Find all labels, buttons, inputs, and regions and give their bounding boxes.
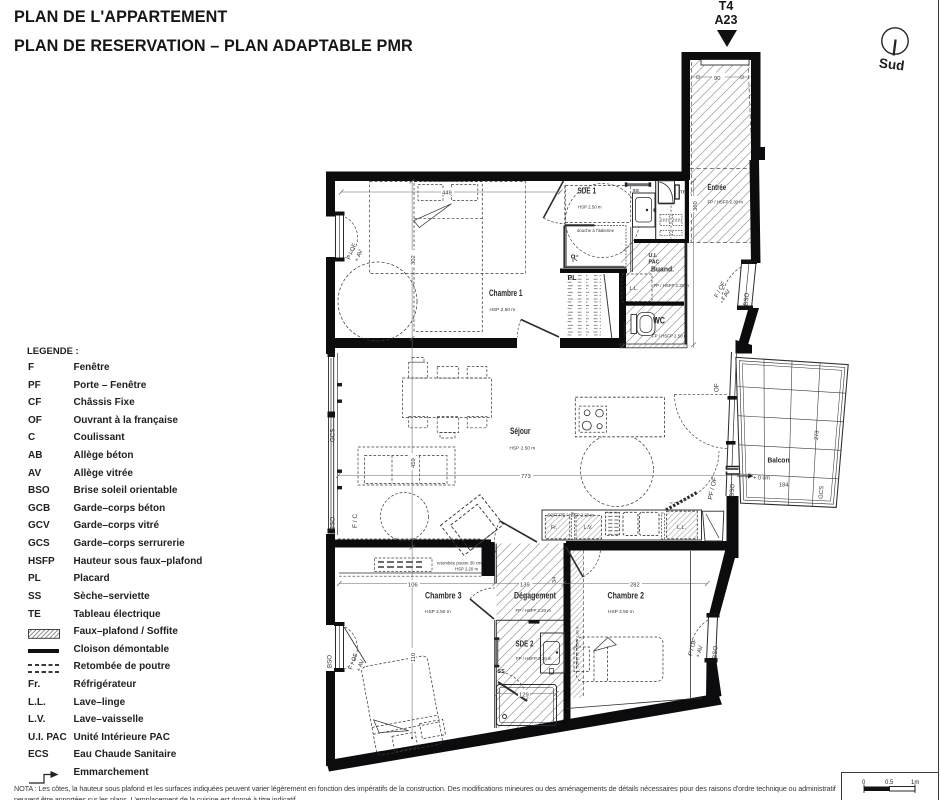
svg-text:L.V.: L.V. [584,525,593,531]
svg-text:Séjour: Séjour [510,426,531,436]
svg-text:L.L.: L.L. [630,286,639,292]
svg-text:FP / HSFP 2.30 m: FP / HSFP 2.30 m [708,200,744,205]
svg-text:34: 34 [552,577,558,583]
svg-text:PAC: PAC [649,260,660,266]
svg-text:SDE 1: SDE 1 [578,187,597,196]
svg-text:Fr.: Fr. [551,525,557,531]
svg-text:BSO: BSO [729,483,737,497]
svg-text:184: 184 [779,483,788,489]
svg-text:WC: WC [653,316,666,326]
svg-text:PL: PL [568,275,578,282]
svg-text:L.L.: L.L. [677,525,686,531]
svg-text:459: 459 [411,458,417,468]
svg-text:129: 129 [519,693,529,699]
svg-text:282: 282 [630,583,640,589]
svg-text:BSO: BSO [327,655,334,668]
svg-text:retombée: retombée [623,322,627,337]
svg-text:HSP 2.50 m: HSP 2.50 m [578,205,602,210]
svg-text:GCS: GCS [330,429,337,442]
svg-text:PF / OF: PF / OF [707,477,719,501]
svg-text:HSP 2.50 m: HSP 2.50 m [425,609,451,615]
svg-text:douche à l'italienne: douche à l'italienne [577,228,615,233]
svg-text:GCS: GCS [819,486,826,499]
svg-text:Entrée: Entrée [708,183,727,192]
svg-text:FP / HSFP 2.50 m: FP / HSFP 2.50 m [652,334,688,339]
svg-text:BSO: BSO [743,292,751,306]
svg-text:HSP 2.20 m: HSP 2.20 m [455,567,479,572]
svg-text:BSO: BSO [330,517,337,530]
svg-text:retombée poutre 30 cm: retombée poutre 30 cm [437,561,482,566]
svg-text:+ AV: + AV [354,249,364,263]
svg-text:Chambre 1: Chambre 1 [489,288,523,298]
svg-text:SDE 2: SDE 2 [516,640,534,649]
svg-text:TE: TE [680,190,687,196]
svg-text:U.I.: U.I. [649,253,658,259]
svg-text:+ 0 cm: + 0 cm [753,476,770,482]
svg-text:HSP 2.50 m: HSP 2.50 m [490,307,516,313]
svg-text:FP / HSFP 2.20 m: FP / HSFP 2.20 m [516,656,552,661]
svg-text:F / C: F / C [352,514,359,528]
svg-text:HSP 2.50 m: HSP 2.50 m [608,609,634,615]
svg-text:HSP 2.50 m: HSP 2.50 m [510,446,536,452]
svg-text:360: 360 [693,201,699,211]
svg-text:449: 449 [442,191,452,197]
svg-text:FP / HSFP 2.20 m: FP / HSFP 2.20 m [654,283,690,288]
svg-text:Chambre 3: Chambre 3 [425,591,462,601]
svg-text:302: 302 [411,255,417,265]
svg-text:Balcon: Balcon [768,456,790,465]
svg-text:Dégagement: Dégagement [514,591,556,601]
svg-text:139: 139 [520,583,530,589]
svg-text:SS: SS [498,669,506,675]
svg-text:773: 773 [521,474,531,480]
svg-text:106: 106 [408,583,418,589]
svg-text:Chambre 2: Chambre 2 [608,591,645,601]
svg-text:+ AV: + AV [696,645,705,659]
svg-text:BSO: BSO [712,645,720,659]
svg-text:FP / HSFP 2.20 m: FP / HSFP 2.20 m [516,608,552,613]
svg-text:110: 110 [411,653,417,662]
svg-text:OF: OF [714,383,721,392]
svg-text:SOFFITE / HSFP 1.80 m: SOFFITE / HSFP 1.80 m [576,626,580,668]
svg-text:273: 273 [814,430,821,440]
svg-text:90: 90 [714,76,720,82]
svg-text:+ AV: + AV [356,659,366,673]
svg-text:Buand.: Buand. [651,267,674,274]
svg-text:SS: SS [633,188,640,194]
svg-text:SOFFITE / HSFP 2.20 m: SOFFITE / HSFP 2.20 m [548,513,595,518]
